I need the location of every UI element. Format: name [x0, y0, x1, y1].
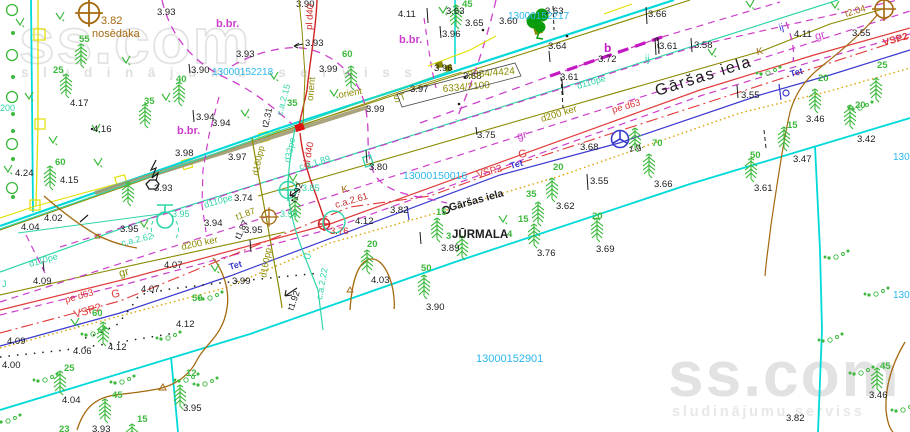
svg-text:3.46: 3.46 — [806, 114, 825, 125]
svg-text:15: 15 — [518, 214, 529, 225]
svg-text:3.46: 3.46 — [869, 390, 888, 401]
svg-text:50: 50 — [421, 263, 432, 274]
svg-text:3.65: 3.65 — [465, 18, 484, 29]
svg-text:3.90: 3.90 — [426, 302, 445, 313]
svg-text:20: 20 — [553, 162, 564, 173]
svg-text:3.80: 3.80 — [369, 162, 388, 173]
svg-text:3.95: 3.95 — [172, 209, 190, 219]
svg-text:45: 45 — [880, 361, 891, 372]
svg-text:4.07: 4.07 — [141, 284, 160, 295]
svg-text:3.85: 3.85 — [302, 183, 320, 193]
svg-text:4.06: 4.06 — [73, 346, 92, 357]
svg-text:3.76: 3.76 — [330, 226, 349, 237]
svg-text:b.br.: b.br. — [216, 18, 239, 30]
svg-text:25: 25 — [64, 363, 75, 374]
svg-text:40: 40 — [176, 74, 187, 85]
svg-text:3.64: 3.64 — [548, 41, 567, 52]
svg-text:3.93: 3.93 — [236, 49, 255, 60]
svg-text:13000152901: 13000152901 — [476, 353, 543, 365]
svg-text:3.93: 3.93 — [154, 183, 173, 194]
svg-text:4.12: 4.12 — [176, 319, 195, 330]
svg-text:1300: 1300 — [893, 290, 910, 301]
svg-text:4.02: 4.02 — [44, 213, 63, 224]
svg-text:sludinājumu serviss: sludinājumu serviss — [672, 404, 865, 420]
svg-text:4.12: 4.12 — [108, 342, 127, 353]
svg-text:23: 23 — [59, 424, 70, 432]
svg-text:13000150016: 13000150016 — [403, 170, 467, 182]
svg-text:13000152218: 13000152218 — [212, 67, 274, 78]
svg-text:4.11: 4.11 — [398, 9, 416, 20]
svg-text:3.90: 3.90 — [191, 65, 210, 76]
svg-text:4.00: 4.00 — [2, 360, 21, 371]
svg-text:3.90: 3.90 — [280, 209, 298, 219]
svg-text:35: 35 — [287, 98, 298, 109]
svg-text:3.99: 3.99 — [232, 276, 251, 287]
svg-text:55: 55 — [79, 34, 90, 45]
svg-text:3.42: 3.42 — [857, 134, 876, 145]
svg-text:45: 45 — [462, 0, 473, 10]
svg-text:4.12: 4.12 — [355, 216, 374, 227]
svg-text:3.97: 3.97 — [228, 152, 247, 163]
svg-text:3.99: 3.99 — [366, 104, 385, 115]
svg-text:4.16: 4.16 — [93, 124, 112, 135]
svg-text:60: 60 — [55, 157, 66, 168]
svg-text:20: 20 — [367, 239, 378, 250]
svg-text:3.74: 3.74 — [234, 193, 253, 204]
svg-text:25: 25 — [877, 60, 888, 71]
svg-text:4.09: 4.09 — [7, 336, 26, 347]
svg-text:4.03: 4.03 — [371, 275, 390, 286]
svg-text:b.br.: b.br. — [177, 125, 200, 137]
svg-text:3.58: 3.58 — [694, 40, 713, 51]
svg-text:3.93: 3.93 — [305, 38, 324, 49]
svg-text:JŪRMALA: JŪRMALA — [452, 229, 508, 241]
svg-text:ss.com: ss.com — [668, 338, 901, 410]
svg-text:b.br.: b.br. — [399, 34, 422, 46]
svg-text:20: 20 — [592, 211, 603, 222]
svg-text:3.61: 3.61 — [659, 41, 678, 52]
svg-text:35: 35 — [144, 96, 155, 107]
svg-text:4.15: 4.15 — [60, 175, 79, 186]
svg-text:3.66: 3.66 — [648, 9, 667, 20]
svg-text:orient: orient — [305, 76, 318, 101]
svg-text:35: 35 — [526, 189, 537, 200]
svg-text:15: 15 — [436, 207, 447, 218]
svg-text:3.55: 3.55 — [852, 28, 871, 39]
svg-text:3.93: 3.93 — [92, 424, 111, 432]
svg-text:4.24: 4.24 — [15, 168, 34, 179]
svg-text:3.82: 3.82 — [786, 413, 805, 424]
svg-text:3.95: 3.95 — [183, 403, 202, 414]
svg-text:12: 12 — [186, 368, 197, 379]
svg-text:4.17: 4.17 — [70, 98, 89, 109]
svg-text:4.04: 4.04 — [21, 222, 40, 233]
svg-text:45: 45 — [112, 390, 123, 401]
svg-text:20: 20 — [818, 73, 829, 84]
svg-text:3.62: 3.62 — [556, 201, 575, 212]
svg-text:50: 50 — [750, 150, 761, 161]
svg-text:3.55: 3.55 — [741, 90, 760, 101]
svg-text:50: 50 — [192, 293, 203, 304]
svg-text:3.76: 3.76 — [537, 248, 556, 259]
svg-text:4.11: 4.11 — [794, 29, 812, 40]
svg-text:60: 60 — [342, 49, 353, 60]
svg-text:3.82: 3.82 — [390, 205, 409, 216]
svg-text:nosēdaka: nosēdaka — [92, 28, 141, 40]
svg-text:4.07: 4.07 — [164, 260, 183, 271]
svg-text:3.94: 3.94 — [212, 118, 231, 129]
svg-text:3.89: 3.89 — [441, 243, 460, 254]
svg-text:20: 20 — [855, 100, 866, 111]
svg-text:70: 70 — [652, 138, 663, 149]
svg-text:3.47: 3.47 — [793, 154, 812, 165]
svg-text:4.04: 4.04 — [62, 395, 81, 406]
svg-text:J: J — [2, 279, 7, 289]
svg-text:ij: ij — [645, 54, 649, 65]
svg-text:3.75: 3.75 — [477, 130, 496, 141]
svg-text:3.61: 3.61 — [754, 183, 773, 194]
svg-text:3.66: 3.66 — [654, 179, 673, 190]
svg-text:3.55: 3.55 — [590, 176, 609, 187]
svg-text:4: 4 — [507, 229, 513, 240]
svg-text:60: 60 — [92, 308, 103, 319]
svg-text:3.82: 3.82 — [101, 15, 122, 27]
svg-text:15: 15 — [137, 414, 148, 425]
svg-text:15: 15 — [787, 120, 798, 131]
svg-text:3: 3 — [446, 231, 451, 242]
svg-text:b: b — [604, 41, 611, 55]
svg-text:3.93: 3.93 — [157, 7, 176, 18]
svg-text:200: 200 — [0, 103, 15, 113]
svg-text:13000152217: 13000152217 — [508, 11, 570, 22]
svg-text:25: 25 — [53, 65, 64, 76]
svg-text:3.96: 3.96 — [442, 29, 461, 40]
svg-text:3.95: 3.95 — [120, 224, 139, 235]
svg-text:3.96: 3.96 — [434, 63, 453, 74]
svg-text:1300: 1300 — [893, 152, 910, 163]
svg-text:3.98: 3.98 — [175, 148, 194, 159]
svg-text:3.94: 3.94 — [204, 218, 223, 229]
svg-text:pl d40: pl d40 — [304, 4, 316, 30]
svg-text:3.99: 3.99 — [319, 64, 338, 75]
svg-text:3.72: 3.72 — [598, 54, 617, 65]
svg-text:3.68: 3.68 — [580, 142, 599, 153]
svg-text:3.69: 3.69 — [596, 244, 615, 255]
svg-text:4.09: 4.09 — [33, 276, 52, 287]
